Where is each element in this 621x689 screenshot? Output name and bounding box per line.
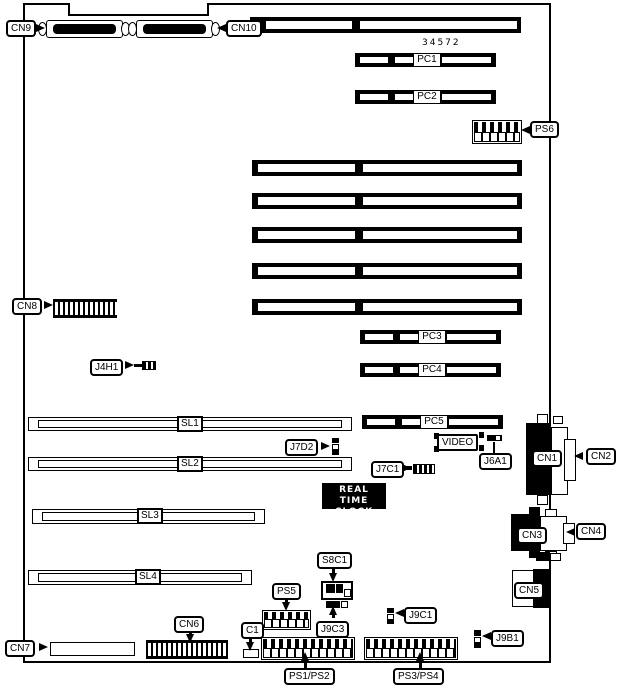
edge-component (536, 552, 550, 561)
slot-opening (395, 57, 414, 63)
bus-slot-6 (252, 299, 522, 315)
pointer-cn9 (36, 24, 45, 32)
label-s8c1: S8C1 (317, 552, 352, 569)
bus-slot-1 (250, 17, 521, 33)
slot-opening (402, 419, 421, 425)
board-edge-top-notch (68, 14, 209, 16)
part-number: 34572 (422, 38, 461, 48)
label-pc1: PC1 (413, 53, 441, 67)
connector-j7d2-pin (332, 450, 339, 455)
board-edge-top-left (23, 3, 70, 5)
pointer-ps5 (282, 602, 290, 611)
connector-cn7 (50, 642, 135, 656)
connector-j9c3-pin (341, 601, 348, 608)
switch-s8c1-cell (344, 589, 351, 597)
connector-slot-opening (143, 24, 206, 34)
bus-slot-3 (252, 193, 522, 209)
connector-j7c1 (413, 464, 435, 474)
slot-pc4: PC4 (360, 363, 501, 377)
slot-opening (360, 94, 388, 100)
label-j7d2: J7D2 (285, 439, 318, 456)
slot-opening (367, 419, 395, 425)
slot-opening (400, 334, 419, 340)
slot-opening (442, 94, 491, 100)
label-j9c1: J9C1 (404, 607, 437, 624)
label-cn6: CN6 (174, 616, 204, 633)
slot-opening (363, 197, 517, 205)
label-pc3: PC3 (418, 330, 446, 344)
slot-pc3: PC3 (360, 330, 501, 344)
label-j9c3: J9C3 (316, 621, 349, 638)
pointer-j9c3 (329, 606, 337, 615)
real-time-clock-chip: REAL TIME CLOCK (322, 483, 386, 509)
slot-opening (447, 367, 496, 373)
pointer-cn4 (566, 528, 575, 536)
connector-j9b1-pin (474, 630, 481, 636)
switch-s8c1-cell (326, 584, 335, 593)
label-sl2: SL2 (177, 456, 203, 472)
label-cn4: CN4 (576, 523, 606, 540)
label-j7c1: J7C1 (371, 461, 404, 478)
slot-opening (360, 21, 517, 29)
slot-opening (449, 419, 498, 425)
cn1-mount-tab (553, 416, 563, 424)
pointer-s8c1 (329, 573, 337, 582)
slot-sl3: SL3 (32, 509, 265, 524)
slot-opening (442, 57, 491, 63)
slot-opening (363, 231, 517, 239)
label-cn3: CN3 (517, 527, 547, 544)
switch-s8c1-cell (336, 584, 343, 593)
board-edge-left (23, 3, 25, 663)
connector-sockets (474, 132, 520, 142)
pointer-j9c1 (395, 609, 404, 617)
label-cn7: CN7 (5, 640, 35, 657)
connector-ps5 (262, 610, 311, 630)
pointer-j9b1 (482, 632, 491, 640)
label-ps3-ps4: PS3/PS4 (393, 668, 444, 685)
edge-tab (550, 553, 561, 561)
slot-pc2: PC2 (355, 90, 496, 104)
board-edge-bottom (23, 661, 551, 663)
slot-opening (365, 367, 393, 373)
label-c1: C1 (241, 622, 264, 639)
label-j9b1: J9B1 (491, 630, 524, 647)
label-ps5: PS5 (272, 583, 301, 600)
label-cn8: CN8 (12, 298, 42, 315)
label-cn1: CN1 (532, 450, 562, 467)
label-sl1: SL1 (177, 416, 203, 432)
pointer-c1 (246, 642, 254, 651)
pointer-j7d2 (321, 442, 330, 450)
pointer-j4h1 (125, 361, 134, 369)
slot-opening (258, 231, 355, 239)
pointer-cn2 (574, 452, 583, 460)
connector-j7d2-pin (332, 438, 339, 443)
video-corner-mark (479, 445, 484, 451)
bus-slot-5 (252, 263, 522, 279)
label-sl3: SL3 (137, 508, 163, 524)
label-ps1-ps2: PS1/PS2 (284, 668, 335, 685)
connector-j4h1 (142, 361, 156, 370)
pointer-cn8 (44, 301, 53, 309)
cn1-mount-tab (537, 495, 548, 505)
slot-opening (365, 334, 393, 340)
slot-opening (395, 94, 414, 100)
slot-sl2: SL2 (28, 457, 352, 471)
label-sl4: SL4 (135, 569, 161, 585)
pointer-cn7 (39, 643, 48, 651)
label-ps6: PS6 (530, 121, 559, 138)
pointer-cn6 (186, 634, 194, 643)
connector-slot-opening (53, 24, 116, 34)
pointer-ps3ps4 (416, 652, 424, 661)
rtc-text-line2: CLOCK (323, 507, 385, 518)
bus-slot-2 (252, 160, 522, 176)
connector-sockets (366, 648, 456, 658)
connector-j9b1-pin (474, 643, 481, 648)
connector-cn9-port (46, 20, 123, 38)
slot-opening (266, 21, 352, 29)
slot-opening (447, 334, 496, 340)
label-pc4: PC4 (418, 363, 446, 377)
label-cn9: CN9 (6, 20, 36, 37)
pointer-cn10 (217, 24, 226, 32)
connector-j9c1-pin (387, 620, 394, 624)
bus-slot-4 (252, 227, 522, 243)
connector-ps6 (472, 120, 522, 144)
connector-sockets (264, 619, 309, 628)
label-j4h1: J4H1 (90, 359, 123, 376)
motherboard-diagram: CN9 CN10 34572 PC1 PC2 PC3 (0, 0, 621, 689)
label-pc2: PC2 (413, 90, 441, 104)
slot-opening (400, 367, 419, 373)
label-pc5: PC5 (420, 415, 448, 429)
pointer-ps6 (521, 126, 530, 134)
slot-opening (258, 164, 355, 172)
board-edge-top-right (207, 3, 551, 5)
label-j6a1: J6A1 (479, 453, 512, 470)
slot-pc1: PC1 (355, 53, 496, 67)
connector-cn8 (53, 299, 117, 318)
video-corner-mark (479, 432, 484, 438)
slot-pc5: PC5 (362, 415, 503, 429)
connector-j9c1-pin (387, 608, 394, 613)
label-video: VIDEO (437, 434, 478, 451)
rtc-text-line1: REAL TIME (323, 485, 385, 507)
board-edge-right (549, 3, 551, 663)
slot-opening (360, 57, 388, 63)
slot-sl1: SL1 (28, 417, 352, 431)
slot-opening (258, 267, 355, 275)
label-cn5: CN5 (514, 582, 544, 599)
slot-opening (363, 267, 517, 275)
slot-opening (258, 303, 355, 311)
slot-opening (258, 197, 355, 205)
connector-j4h1-stem (134, 364, 142, 367)
slot-sl4: SL4 (28, 570, 252, 585)
slot-opening (363, 164, 517, 172)
pointer-ps1ps2 (301, 652, 309, 661)
connector-cn10-port (136, 20, 213, 38)
label-cn2: CN2 (586, 448, 616, 465)
connector-ps3-ps4 (364, 637, 458, 660)
connector-j6a1-pin (496, 436, 500, 440)
connector-cn1-dsub-inner (564, 439, 576, 481)
slot-opening (363, 303, 517, 311)
label-cn10: CN10 (226, 20, 262, 37)
